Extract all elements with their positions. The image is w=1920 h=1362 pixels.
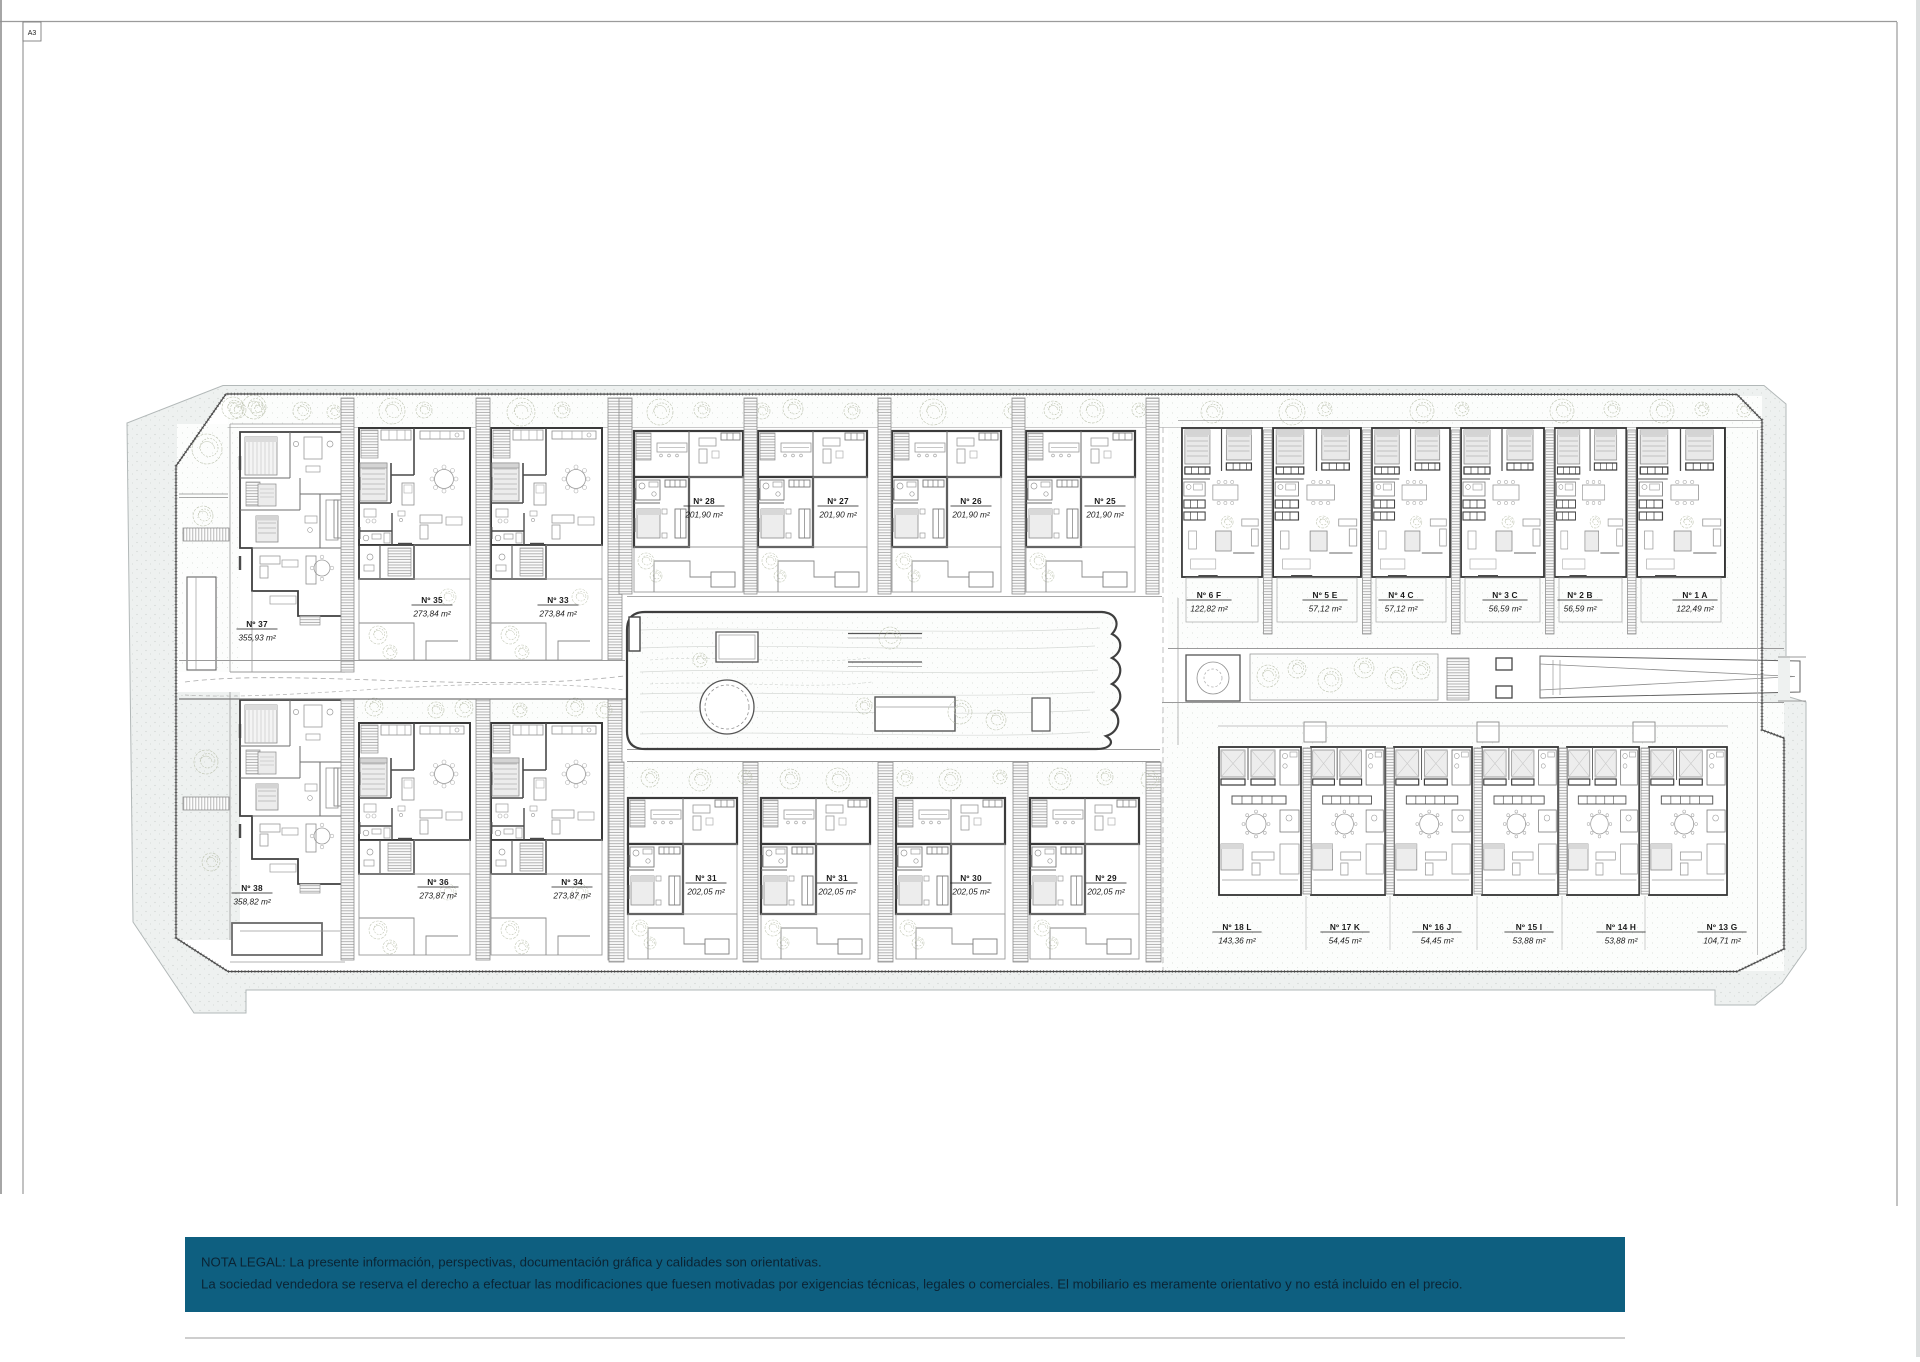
svg-text:202,05 m²: 202,05 m² xyxy=(1086,887,1125,897)
svg-text:57,12 m²: 57,12 m² xyxy=(1309,604,1342,614)
svg-text:Nº 37: Nº 37 xyxy=(246,619,268,629)
svg-text:Nº 14 H: Nº 14 H xyxy=(1606,922,1636,932)
svg-text:56,59 m²: 56,59 m² xyxy=(1564,604,1597,614)
svg-text:355,93 m²: 355,93 m² xyxy=(238,633,276,643)
svg-text:122,82 m²: 122,82 m² xyxy=(1190,604,1228,614)
svg-text:53,88 m²: 53,88 m² xyxy=(1513,936,1546,946)
svg-text:273,84 m²: 273,84 m² xyxy=(538,609,577,619)
svg-text:104,71 m²: 104,71 m² xyxy=(1703,936,1741,946)
svg-text:143,36 m²: 143,36 m² xyxy=(1218,936,1256,946)
svg-text:A3: A3 xyxy=(28,30,37,37)
svg-text:Nº 33: Nº 33 xyxy=(547,595,569,605)
svg-text:201,90 m²: 201,90 m² xyxy=(684,510,723,520)
svg-text:Nº 38: Nº 38 xyxy=(241,883,263,893)
svg-text:Nº 26: Nº 26 xyxy=(960,496,982,506)
svg-text:Nº 31: Nº 31 xyxy=(695,873,717,883)
svg-text:Nº 18 L: Nº 18 L xyxy=(1222,922,1251,932)
svg-text:Nº 25: Nº 25 xyxy=(1094,496,1116,506)
svg-text:Nº 35: Nº 35 xyxy=(421,595,443,605)
svg-text:202,05 m²: 202,05 m² xyxy=(817,887,856,897)
svg-text:Nº 5 E: Nº 5 E xyxy=(1313,590,1338,600)
svg-text:54,45 m²: 54,45 m² xyxy=(1421,936,1454,946)
svg-text:273,84 m²: 273,84 m² xyxy=(412,609,451,619)
svg-text:56,59 m²: 56,59 m² xyxy=(1489,604,1522,614)
svg-text:Nº 2 B: Nº 2 B xyxy=(1567,590,1592,600)
svg-text:Nº 17 K: Nº 17 K xyxy=(1330,922,1360,932)
svg-text:273,87 m²: 273,87 m² xyxy=(418,891,457,901)
svg-text:Nº 27: Nº 27 xyxy=(827,496,849,506)
svg-text:201,90 m²: 201,90 m² xyxy=(1085,510,1124,520)
svg-text:Nº 6 F: Nº 6 F xyxy=(1197,590,1222,600)
svg-text:Nº 28: Nº 28 xyxy=(693,496,715,506)
svg-text:201,90 m²: 201,90 m² xyxy=(818,510,857,520)
svg-text:201,90 m²: 201,90 m² xyxy=(951,510,990,520)
svg-text:358,82 m²: 358,82 m² xyxy=(233,897,271,907)
svg-text:273,87 m²: 273,87 m² xyxy=(552,891,591,901)
svg-text:Nº 29: Nº 29 xyxy=(1095,873,1117,883)
svg-text:122,49 m²: 122,49 m² xyxy=(1676,604,1714,614)
svg-text:57,12 m²: 57,12 m² xyxy=(1385,604,1418,614)
svg-text:NOTA LEGAL: La presente inform: NOTA LEGAL: La presente información, per… xyxy=(201,1255,822,1270)
svg-text:Nº 13 G: Nº 13 G xyxy=(1707,922,1738,932)
svg-text:54,45 m²: 54,45 m² xyxy=(1329,936,1362,946)
svg-text:La sociedad vendedora se reser: La sociedad vendedora se reserva el dere… xyxy=(201,1277,1463,1292)
svg-text:Nº 15 I: Nº 15 I xyxy=(1516,922,1543,932)
svg-text:Nº 34: Nº 34 xyxy=(561,877,583,887)
svg-text:Nº 31: Nº 31 xyxy=(826,873,848,883)
svg-text:Nº 4 C: Nº 4 C xyxy=(1388,590,1413,600)
svg-text:Nº 1 A: Nº 1 A xyxy=(1682,590,1707,600)
svg-text:202,05 m²: 202,05 m² xyxy=(686,887,725,897)
svg-text:53,88 m²: 53,88 m² xyxy=(1605,936,1638,946)
svg-text:Nº 30: Nº 30 xyxy=(960,873,982,883)
svg-text:202,05 m²: 202,05 m² xyxy=(951,887,990,897)
svg-text:Nº 3 C: Nº 3 C xyxy=(1492,590,1517,600)
svg-text:Nº 16 J: Nº 16 J xyxy=(1423,922,1452,932)
svg-text:Nº 36: Nº 36 xyxy=(427,877,449,887)
